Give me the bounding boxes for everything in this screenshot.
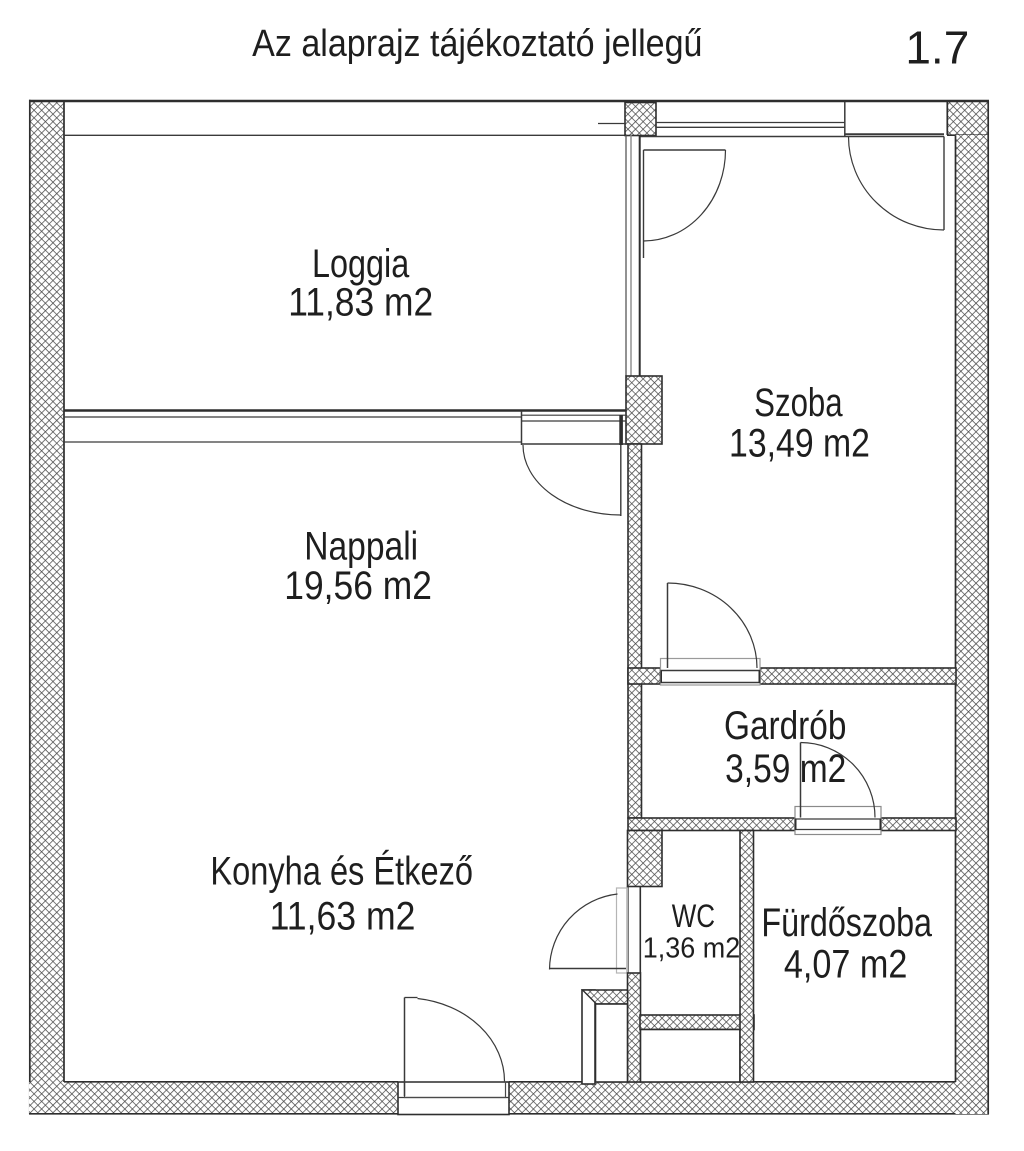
- svg-text:Konyha és Étkező: Konyha és Étkező: [210, 849, 473, 894]
- svg-text:Szoba: Szoba: [754, 380, 842, 425]
- svg-text:13,49 m2: 13,49 m2: [729, 420, 870, 465]
- svg-text:19,56 m2: 19,56 m2: [284, 564, 432, 608]
- svg-text:Gardrób: Gardrób: [724, 703, 846, 748]
- svg-text:11,63 m2: 11,63 m2: [270, 895, 416, 939]
- svg-text:4,07 m2: 4,07 m2: [784, 941, 908, 986]
- svg-text:11,83 m2: 11,83 m2: [288, 281, 433, 325]
- svg-text:Loggia: Loggia: [312, 241, 410, 286]
- svg-text:1.7: 1.7: [905, 22, 969, 74]
- svg-text:WC: WC: [672, 899, 715, 934]
- svg-text:1,36 m2: 1,36 m2: [643, 932, 740, 964]
- svg-text:Fürdőszoba: Fürdőszoba: [761, 900, 932, 945]
- svg-text:Az alaprajz tájékoztató jelleg: Az alaprajz tájékoztató jellegű: [252, 21, 702, 64]
- svg-text:3,59 m2: 3,59 m2: [725, 746, 846, 790]
- svg-text:Nappali: Nappali: [304, 524, 418, 568]
